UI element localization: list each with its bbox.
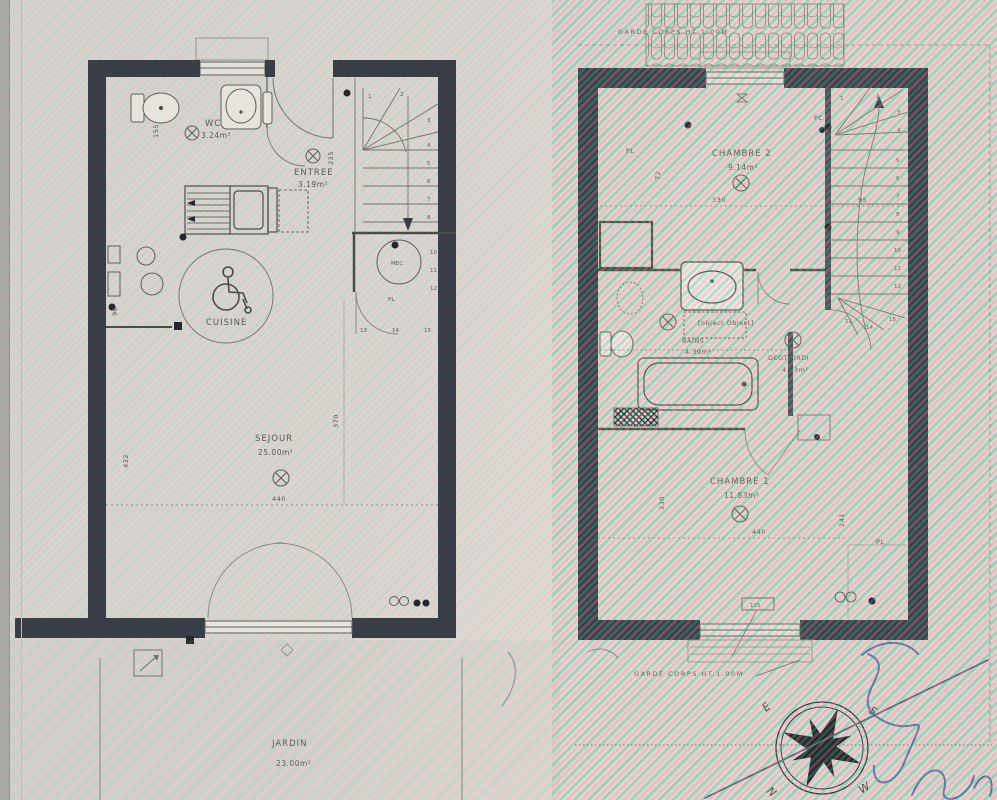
velux-window: [object Object] <box>684 312 754 338</box>
compass-east: E <box>760 700 774 714</box>
svg-text:11: 11 <box>430 268 437 274</box>
balcony-deck <box>688 640 812 662</box>
stair-direction-arrow <box>403 218 413 231</box>
dim-72: 72 <box>654 171 662 180</box>
svg-text:9: 9 <box>896 230 900 236</box>
svg-text:14: 14 <box>866 325 873 331</box>
first-floor-plan: GARDE CORPS HT 1.00M CHAMBRE 2 <box>575 4 992 745</box>
wc-label: WC <box>205 119 221 129</box>
svg-text:8: 8 <box>896 212 900 218</box>
chambre2-area: 9.14m² <box>728 163 758 172</box>
svg-text:10: 10 <box>430 250 437 256</box>
drain-symbol <box>281 644 293 656</box>
floorplan-drawing: WC 3.24m² 155 ENTREE 3.19m² 225 <box>0 0 997 800</box>
dim-225: 225 <box>327 151 335 165</box>
wall-dot <box>825 224 832 231</box>
dim-241: 241 <box>838 513 846 527</box>
radiator-marks <box>835 592 876 605</box>
washbasin-icon <box>681 262 743 310</box>
washbasin-icon <box>221 85 272 129</box>
svg-text:5: 5 <box>427 161 431 167</box>
dim-440: 440 <box>272 495 286 503</box>
wc-area: 3.24m² <box>201 131 231 140</box>
jardin-label: JARDIN <box>271 739 308 749</box>
porch-step <box>196 38 268 60</box>
svg-text:3: 3 <box>897 110 901 116</box>
tiled-strip <box>614 408 658 426</box>
wall-dot <box>180 234 187 241</box>
ground-floor-plan: WC 3.24m² 155 ENTREE 3.19m² 225 <box>15 38 462 800</box>
stair-numbers: 1 2 3 4 5 6 7 8 <box>368 92 431 221</box>
dim-330: 330 <box>658 496 666 510</box>
ceiling-light-icon <box>185 126 199 140</box>
radiator-marks <box>390 597 430 607</box>
dim-432: 432 <box>122 454 130 468</box>
dim-330: 330 <box>712 196 726 204</box>
svg-text:1: 1 <box>840 96 844 102</box>
paper-edge <box>0 0 10 800</box>
compass-rose-icon: E S N W <box>760 689 881 800</box>
ceiling-light-icon <box>733 175 749 191</box>
wc-partition <box>267 77 305 166</box>
dim-96: 96 <box>111 307 119 316</box>
stair-numbers: 1 2 3 4 5 6 7 8 9 10 11 12 13 14 15 <box>840 94 901 331</box>
french-door-swing <box>208 543 352 618</box>
svg-text:10: 10 <box>894 248 901 254</box>
wall-dot <box>825 124 832 131</box>
stair-wall <box>825 88 831 310</box>
svg-text:12: 12 <box>430 286 437 292</box>
bains-area: 4.39m² <box>685 348 711 356</box>
closet-lines <box>848 545 906 618</box>
kitchen-counter <box>185 186 308 234</box>
closet <box>600 222 652 268</box>
kitchen-partition <box>106 322 182 330</box>
svg-text:2: 2 <box>400 92 404 98</box>
dim-440: 440 <box>752 528 766 536</box>
svg-text:11: 11 <box>894 266 901 272</box>
degt-label: DEGT/ORDI <box>768 354 809 362</box>
exterior-walls <box>15 60 456 638</box>
sejour-area: 25.00m² <box>258 448 293 457</box>
velux-label: [object Object] <box>698 319 754 327</box>
svg-text:8: 8 <box>427 215 431 221</box>
svg-text:5: 5 <box>896 158 900 164</box>
chambre2-label: CHAMBRE 2 <box>712 149 772 159</box>
garde-corps-bottom-label: GARDE CORPS HT.1.00M <box>634 670 744 678</box>
svg-text:12: 12 <box>894 284 901 290</box>
wheelchair-turning-circle <box>179 249 273 343</box>
svg-text:15: 15 <box>424 328 431 334</box>
scanned-floorplan-photo: WC 3.24m² 155 ENTREE 3.19m² 225 <box>0 0 997 800</box>
terrace <box>203 638 357 660</box>
bains-label: BAINS <box>682 337 704 345</box>
ceiling-light-icon <box>273 470 289 486</box>
svg-text:13: 13 <box>360 328 367 334</box>
ceiling-light-icon <box>306 149 320 163</box>
leader-line <box>756 660 800 676</box>
jardin-area: 23.00m² <box>276 759 311 768</box>
svg-text:6: 6 <box>896 176 900 182</box>
pen-scribble <box>502 643 992 799</box>
roof-light <box>617 282 643 314</box>
cuisine-label: CUISINE <box>206 318 247 328</box>
svg-text:3: 3 <box>427 118 431 124</box>
svg-text:14: 14 <box>392 328 399 334</box>
svg-text:13: 13 <box>845 319 852 325</box>
paper-fold-line <box>21 0 22 800</box>
gate-arrow-icon <box>134 650 162 676</box>
svg-text:6: 6 <box>427 179 431 185</box>
pc-label: PC <box>814 114 823 122</box>
ceiling-light-icon <box>660 314 676 330</box>
svg-text:7: 7 <box>427 197 431 203</box>
sejour-label: SEJOUR <box>255 434 293 444</box>
mec-label: MEC <box>391 261 403 267</box>
svg-text:2: 2 <box>876 94 880 100</box>
degt-area: 4.53m² <box>782 366 808 374</box>
garden-sliding-door <box>205 621 352 633</box>
wall-dot <box>819 127 825 133</box>
garde-corps-top-label: GARDE CORPS HT 1.00M <box>618 28 728 36</box>
window-size-tag: 115 <box>750 603 761 609</box>
entree-label: ENTREE <box>294 168 334 178</box>
chambre1-area: 11.83m² <box>724 491 759 500</box>
top-window <box>200 62 265 75</box>
svg-text:4: 4 <box>897 128 901 134</box>
svg-text:1: 1 <box>368 94 372 100</box>
dim-370: 370 <box>332 414 340 428</box>
pl-label: PL <box>388 297 395 303</box>
bathtub-icon <box>638 358 758 410</box>
svg-text:7: 7 <box>896 194 900 200</box>
entree-area: 3.19m² <box>298 180 328 189</box>
wall-dot <box>685 122 692 129</box>
chambre1-label: CHAMBRE 1 <box>710 477 770 487</box>
garden-boundary <box>100 658 462 800</box>
wheelchair-accessibility-icon <box>213 267 251 313</box>
svg-text:15: 15 <box>889 317 896 323</box>
ceiling-light-icon <box>732 506 748 522</box>
wall-dot <box>186 636 194 644</box>
compass-west: W <box>856 779 873 797</box>
dim-155: 155 <box>152 124 160 138</box>
toilet-icon <box>600 331 633 357</box>
sink-icons <box>108 246 163 311</box>
front-door-swing <box>273 78 333 138</box>
svg-text:4: 4 <box>427 143 431 149</box>
pl-top-label: PL <box>626 147 635 155</box>
compass-north: N <box>764 784 779 799</box>
toilet-icon <box>131 93 179 123</box>
staircase <box>344 78 439 232</box>
